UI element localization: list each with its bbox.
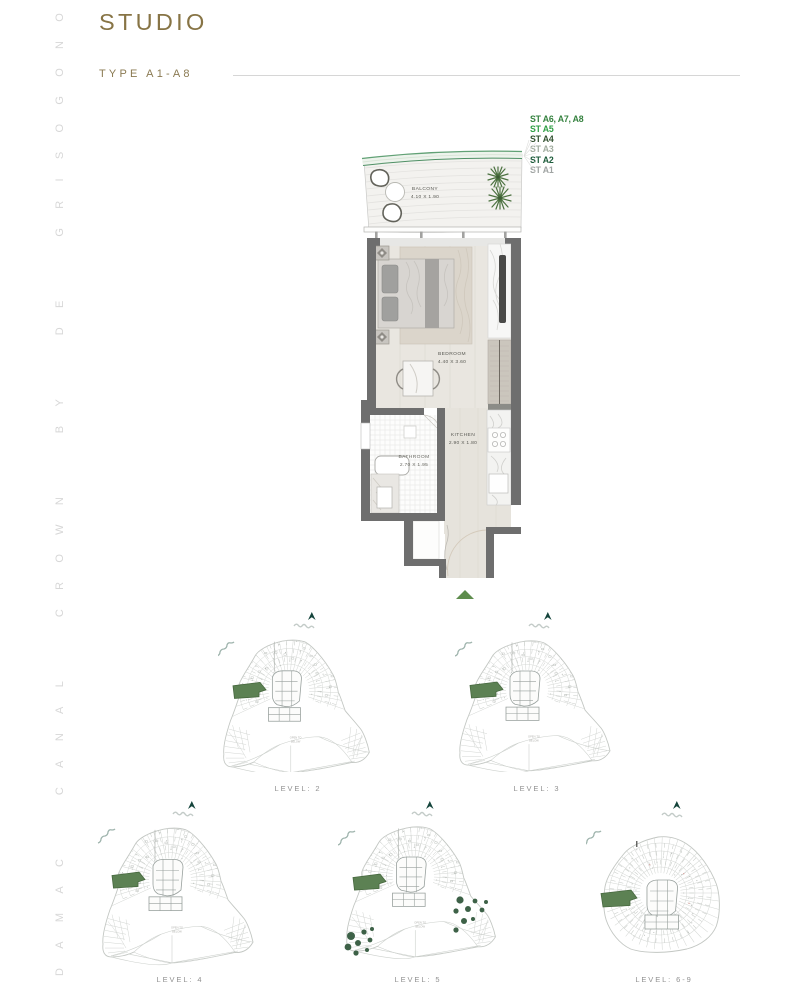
svg-text:BALCONY: BALCONY — [412, 186, 439, 192]
svg-text:4.40 X 3.60: 4.40 X 3.60 — [438, 359, 466, 365]
svg-text:KITCHEN: KITCHEN — [451, 432, 475, 438]
svg-text:2.70 X 1.95: 2.70 X 1.95 — [400, 462, 428, 468]
svg-text:BATHROOM: BATHROOM — [398, 454, 429, 460]
svg-text:4.10 X 1.90: 4.10 X 1.90 — [411, 194, 439, 200]
svg-text:BEDROOM: BEDROOM — [438, 351, 466, 357]
svg-text:2.90 X 1.80: 2.90 X 1.80 — [449, 440, 477, 446]
